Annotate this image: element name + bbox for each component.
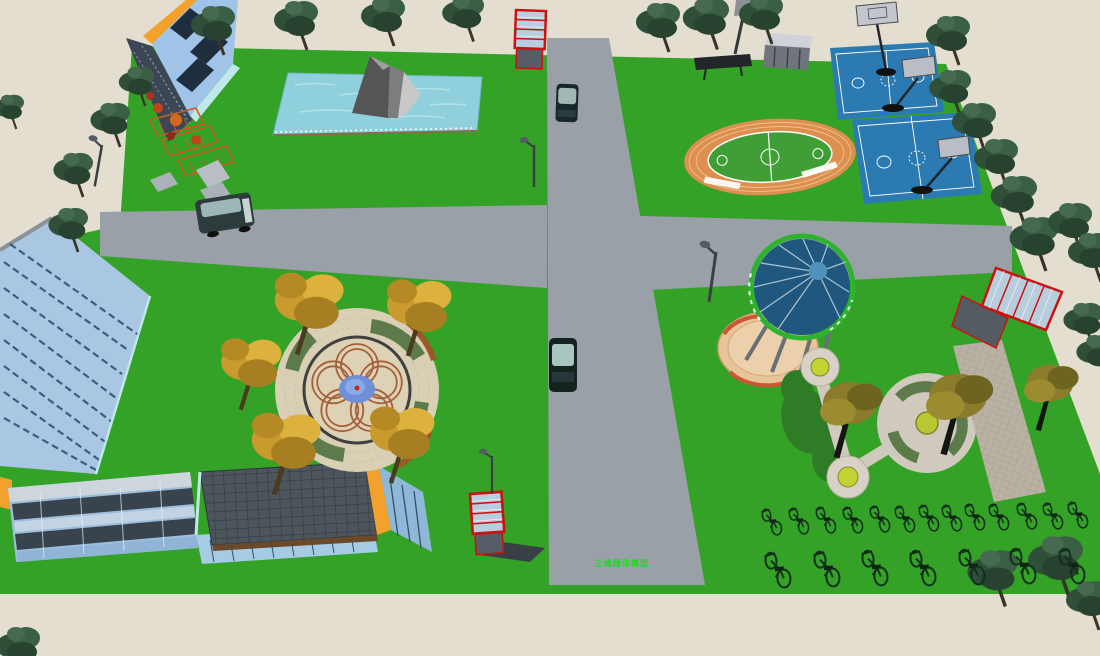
car-south — [549, 338, 577, 392]
model-viewport[interactable]: 三维绿化模型 — [0, 0, 1100, 656]
car-north — [555, 84, 578, 123]
watermark-text: 三维绿化模型 — [595, 558, 649, 568]
scene-canvas[interactable]: 三维绿化模型 — [0, 0, 1100, 656]
flower-plaza-fountain — [339, 375, 375, 403]
bulletin-board-north — [514, 10, 546, 69]
